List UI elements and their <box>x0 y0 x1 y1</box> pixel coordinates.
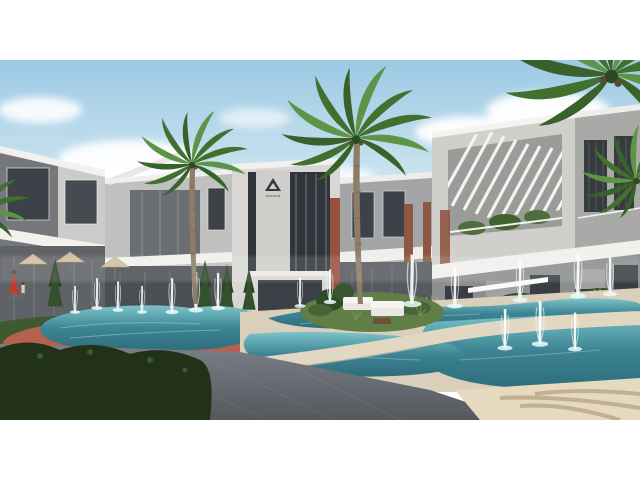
letterbox-top <box>0 0 640 60</box>
horizon-haze <box>0 256 640 282</box>
logo-text: TROWON <box>264 194 280 198</box>
compound-render-photo: TROWON <box>0 60 640 420</box>
foreground-bush <box>0 342 212 420</box>
letterbox-bottom <box>0 420 640 480</box>
screenshot-canvas: TROWON <box>0 0 640 480</box>
coffee-table <box>373 318 391 324</box>
